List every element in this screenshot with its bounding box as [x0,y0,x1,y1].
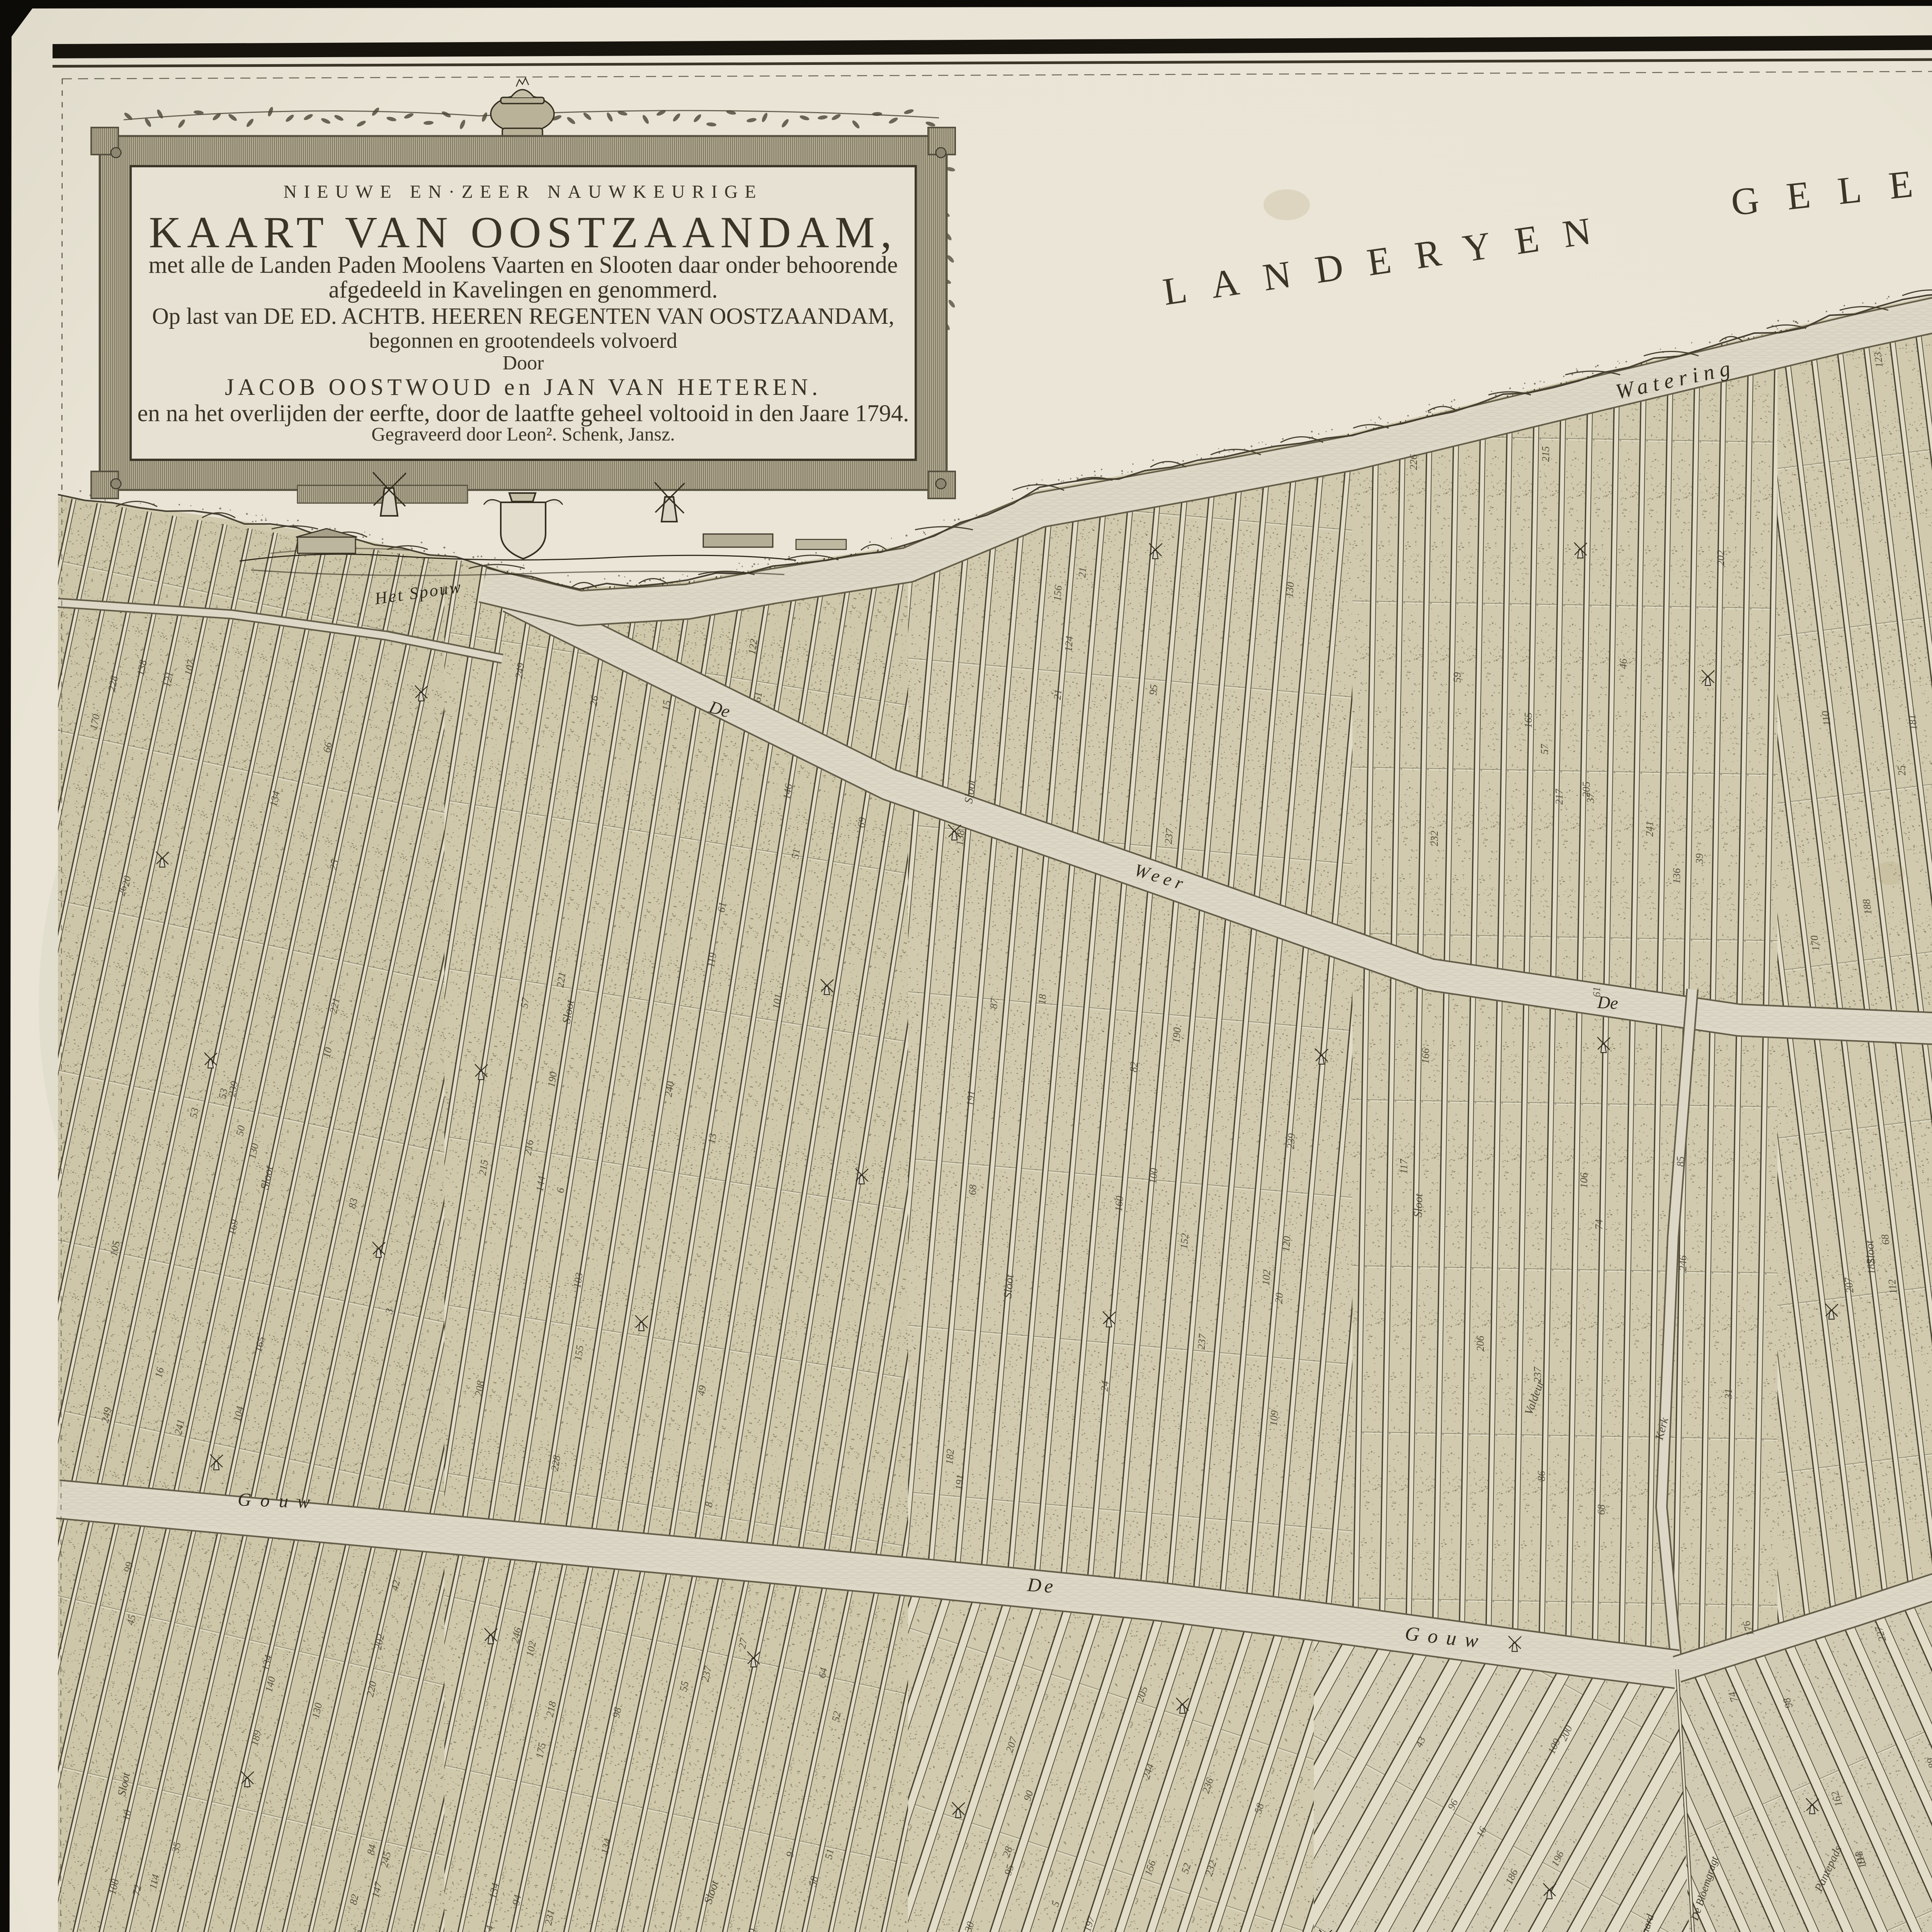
svg-text:182: 182 [943,1449,956,1465]
svg-text:met alle de Landen Paden Moole: met alle de Landen Paden Moolens Vaarten… [148,252,898,278]
svg-text:31: 31 [1723,1389,1734,1400]
svg-text:216: 216 [522,1139,536,1156]
svg-text:82: 82 [1128,1061,1140,1073]
svg-text:24: 24 [1099,1380,1111,1392]
svg-text:122: 122 [746,638,760,655]
svg-text:49: 49 [695,1384,708,1396]
svg-text:156: 156 [1051,585,1064,601]
svg-text:18: 18 [1036,993,1048,1005]
svg-text:138: 138 [954,829,966,846]
svg-text:25: 25 [1895,765,1908,776]
svg-text:15: 15 [660,699,673,711]
svg-text:241: 241 [1644,821,1655,837]
svg-text:146: 146 [781,783,794,800]
svg-text:110: 110 [1820,710,1833,726]
svg-text:237: 237 [1162,827,1175,844]
svg-text:215: 215 [476,1159,490,1176]
svg-text:246: 246 [1677,1255,1689,1271]
svg-text:221: 221 [554,971,568,988]
svg-text:begonnen en grootendeels volvo: begonnen en grootendeels volvoerd [369,329,677,353]
svg-text:86: 86 [1536,1471,1547,1481]
svg-text:124: 124 [1062,636,1075,652]
svg-text:69: 69 [855,816,868,828]
svg-text:152: 152 [1178,1233,1190,1250]
svg-text:109: 109 [1267,1410,1280,1426]
svg-text:61: 61 [751,691,764,703]
svg-text:NIEUWE EN·ZEER NAUWKEURIGE: NIEUWE EN·ZEER NAUWKEURIGE [283,182,763,202]
svg-text:21: 21 [1051,689,1064,700]
svg-text:119: 119 [705,952,719,968]
svg-text:61: 61 [715,901,728,913]
svg-text:en na het overlijden der eerft: en na het overlijden der eerfte, door de… [138,400,909,427]
svg-text:103: 103 [571,1272,585,1289]
svg-text:228: 228 [549,1454,563,1472]
svg-text:207: 207 [1842,1276,1856,1294]
svg-text:237: 237 [1195,1333,1208,1350]
svg-text:155: 155 [572,1344,586,1362]
svg-text:112: 112 [1886,1279,1899,1295]
svg-text:afgedeeld in Kavelingen en gen: afgedeeld in Kavelingen en genommerd. [328,277,718,303]
svg-text:20: 20 [1273,1292,1285,1304]
svg-text:39: 39 [1694,853,1705,864]
svg-text:217: 217 [1553,788,1565,804]
svg-text:68: 68 [966,1184,979,1196]
svg-text:120: 120 [1280,1235,1293,1252]
svg-text:68: 68 [1879,1233,1891,1245]
svg-text:232: 232 [1429,831,1440,847]
svg-text:215: 215 [1540,446,1551,462]
svg-text:136: 136 [1671,868,1682,884]
svg-text:240: 240 [662,1080,676,1098]
svg-text:KAART VAN OOSTZAANDAM,: KAART VAN OOSTZAANDAM, [149,208,898,257]
svg-text:208: 208 [473,1380,486,1397]
svg-text:101: 101 [770,993,784,1010]
svg-text:117: 117 [1398,1158,1410,1174]
svg-text:Op last van DE ED. ACHTB. HEER: Op last van DE ED. ACHTB. HEEREN REGENTE… [152,303,894,329]
svg-text:190: 190 [545,1071,559,1088]
svg-text:166: 166 [1420,1048,1431,1064]
svg-text:46: 46 [1617,658,1629,669]
svg-text:Gegraveerd door Leon². Schenk,: Gegraveerd door Leon². Schenk, Jansz. [371,423,675,445]
svg-text:Door: Door [503,352,544,374]
svg-text:188: 188 [1861,898,1874,915]
svg-text:87: 87 [988,997,1000,1009]
svg-text:202: 202 [1715,550,1726,566]
svg-text:13: 13 [706,1133,719,1145]
svg-text:181: 181 [1906,714,1920,731]
svg-text:Sloot: Sloot [1001,1274,1016,1299]
svg-text:239: 239 [1284,1133,1297,1149]
svg-text:95: 95 [1147,684,1160,696]
svg-text:165: 165 [1522,713,1534,728]
svg-text:170: 170 [1808,935,1822,952]
svg-text:226: 226 [1408,454,1419,470]
svg-text:26: 26 [587,694,600,707]
svg-text:191: 191 [964,1090,977,1107]
svg-text:74: 74 [1593,1219,1605,1230]
svg-text:Gouw: Gouw [237,1489,319,1512]
svg-text:68: 68 [1595,1504,1607,1515]
svg-text:85: 85 [1675,1156,1686,1167]
svg-text:59: 59 [1451,672,1463,683]
svg-text:De: De [1026,1573,1057,1597]
svg-text:205: 205 [1580,782,1592,798]
svg-text:21: 21 [1076,566,1088,578]
svg-text:100: 100 [1147,1167,1160,1184]
svg-text:106: 106 [1578,1172,1590,1188]
svg-text:160: 160 [1112,1195,1125,1212]
svg-text:123: 123 [1872,351,1885,368]
svg-text:61: 61 [1591,987,1602,997]
svg-text:Sloot: Sloot [1863,1240,1878,1265]
svg-text:191: 191 [953,1474,966,1491]
svg-text:JACOB OOSTWOUD en JAN VAN HETE: JACOB OOSTWOUD en JAN VAN HETEREN. [225,374,821,400]
svg-text:206: 206 [1475,1335,1486,1351]
svg-text:144: 144 [534,1175,548,1192]
svg-text:249: 249 [513,662,527,679]
svg-text:102: 102 [1260,1269,1272,1286]
svg-text:57: 57 [1539,743,1550,755]
svg-text:130: 130 [1283,581,1296,598]
svg-text:Sloot: Sloot [1412,1193,1425,1218]
svg-text:190: 190 [1170,1027,1183,1043]
svg-text:51: 51 [789,848,802,860]
